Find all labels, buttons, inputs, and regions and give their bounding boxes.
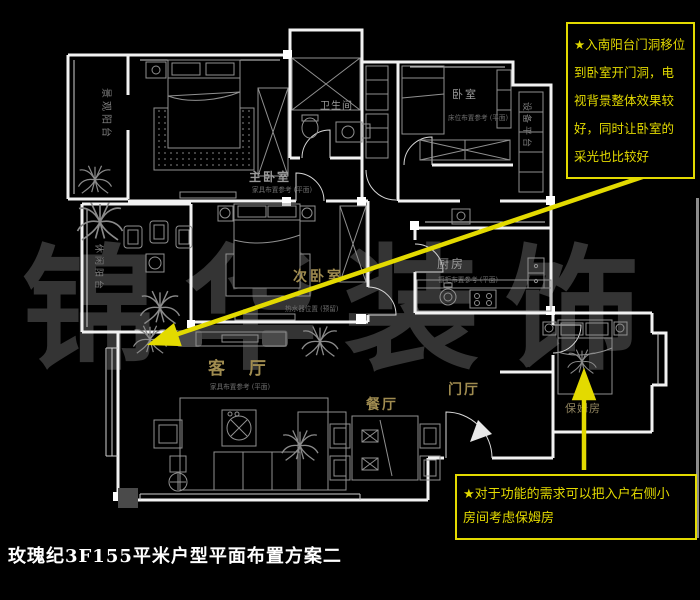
- arrowhead-living-room: [150, 327, 179, 352]
- note-line: 房间考虑保姆房: [463, 507, 689, 531]
- note-line: 好，同时让卧室的: [574, 115, 687, 143]
- annotation-box-bottom: ★对于功能的需求可以把入户右侧小 房间考虑保姆房: [455, 474, 697, 540]
- note-line: ★入南阳台门洞移位: [574, 31, 687, 59]
- floor-plan-screenshot: 锦华装饰: [0, 0, 700, 600]
- page-title: 玫瑰纪3F155平米户型平面布置方案二: [8, 542, 342, 568]
- note-line: ★对于功能的需求可以把入户右侧小: [463, 483, 689, 507]
- note-line: 到卧室开门洞，电: [574, 59, 687, 87]
- arrowhead-nanny-room: [575, 374, 593, 398]
- arrow-to-living-room: [175, 171, 660, 335]
- annotation-box-top: ★入南阳台门洞移位 到卧室开门洞，电 视背景整体效果较 好，同时让卧室的 采光也…: [566, 22, 695, 179]
- note-line: 视背景整体效果较: [574, 87, 687, 115]
- note-line: 采光也比较好: [574, 143, 687, 171]
